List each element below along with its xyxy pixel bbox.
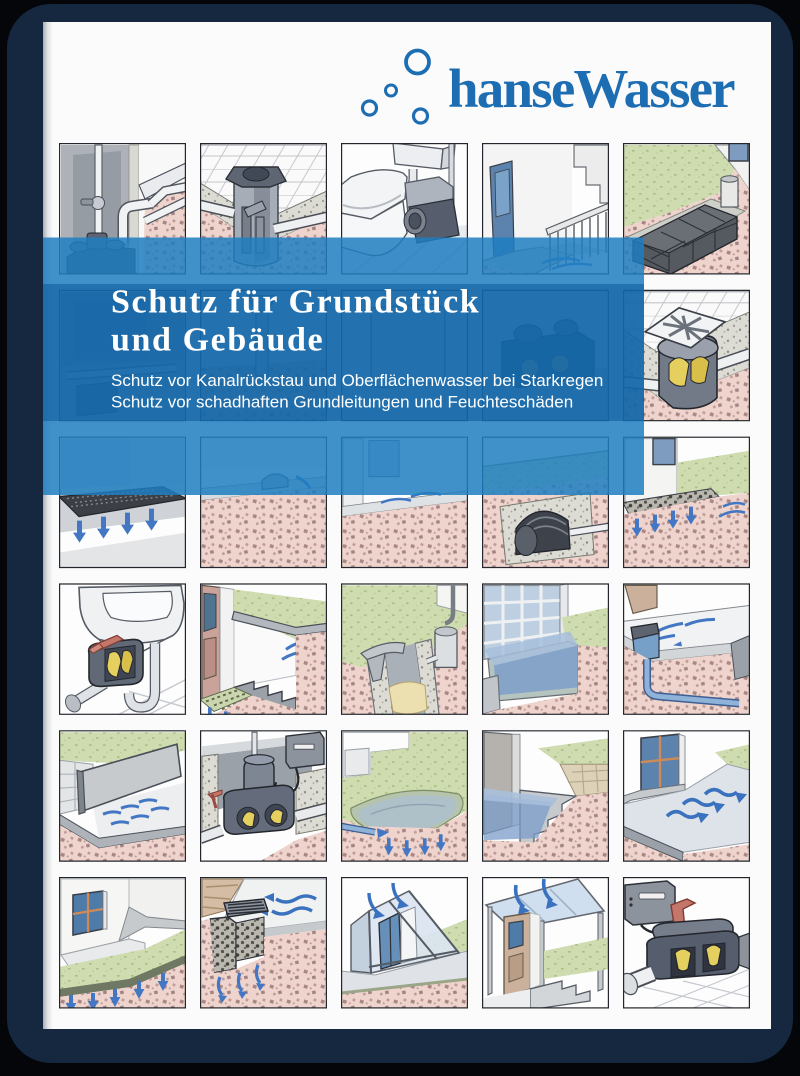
svg-text:Schutz vor Kanalrückstau und O: Schutz vor Kanalrückstau und Oberflächen… [111, 371, 603, 390]
svg-text:hanseWasser: hanseWasser [448, 58, 735, 119]
svg-text:und Gebäude: und Gebäude [111, 322, 324, 359]
svg-text:Schutz vor schadhaften Grundle: Schutz vor schadhaften Grundleitungen un… [111, 393, 573, 412]
svg-text:Schutz für Grundstück: Schutz für Grundstück [111, 284, 480, 321]
